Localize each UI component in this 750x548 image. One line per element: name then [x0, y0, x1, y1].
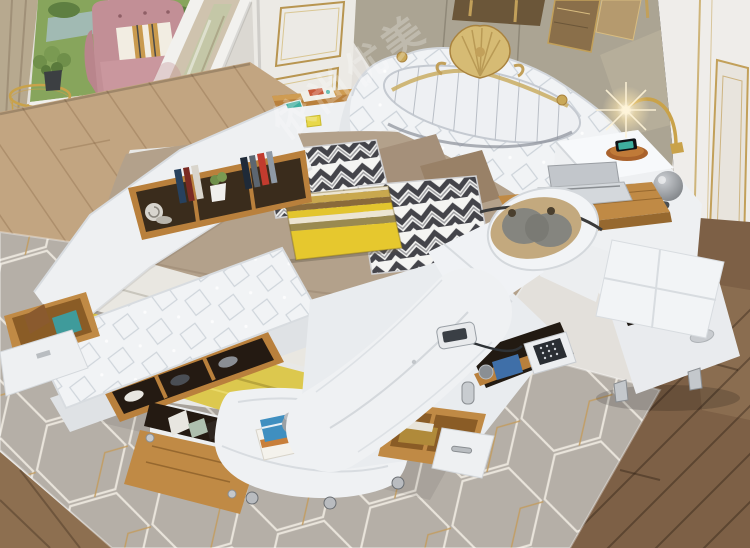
caster-wheel — [392, 477, 404, 489]
gold-finial — [397, 52, 407, 62]
hinge — [228, 490, 236, 498]
round-tin — [479, 365, 493, 379]
hinge — [146, 434, 154, 442]
chrome-leg — [462, 382, 474, 404]
bedroom-product-photo: 依尚优美 — [0, 0, 750, 548]
gold-finial — [557, 95, 567, 105]
mini-potted-plant — [210, 172, 227, 202]
chrome-foot — [688, 368, 702, 390]
chrome-foot — [614, 380, 628, 402]
caster-wheel — [246, 492, 258, 504]
caster-wheel — [324, 497, 336, 509]
warning-sticker — [306, 115, 321, 127]
